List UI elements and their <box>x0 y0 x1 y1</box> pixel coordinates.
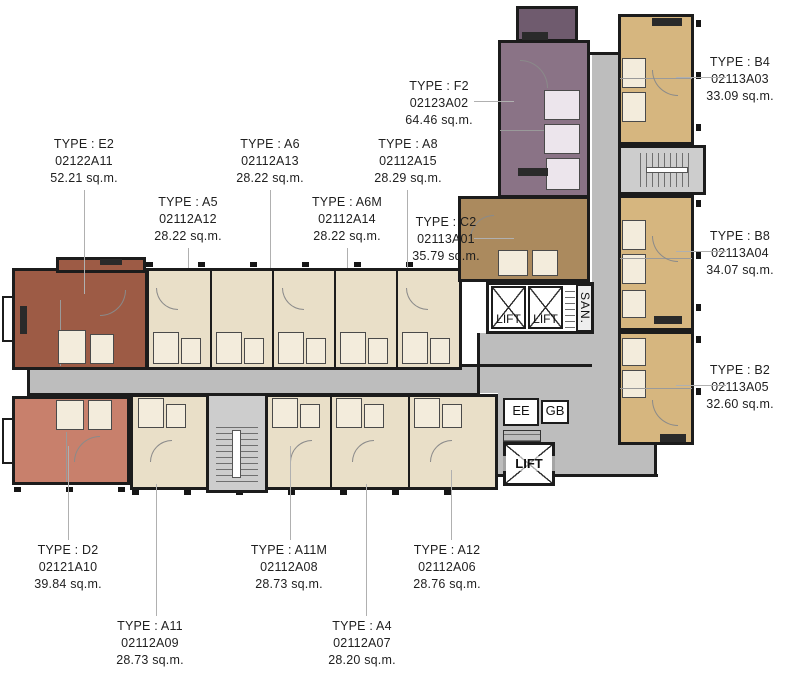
unit-type: TYPE : A8 <box>358 136 458 153</box>
bathroom-pod <box>181 338 201 364</box>
unit-area: 28.73 sq.m. <box>100 652 200 669</box>
bathroom-pod <box>544 90 580 120</box>
bathroom-pod <box>153 332 179 364</box>
unit-type: TYPE : A12 <box>397 542 497 559</box>
label-b4: TYPE : B4 02113A03 33.09 sq.m. <box>688 54 792 105</box>
bathroom-pod <box>306 338 326 364</box>
wall <box>589 52 621 55</box>
label-a11: TYPE : A11 02112A09 28.73 sq.m. <box>100 618 200 669</box>
bathroom-pod <box>622 370 646 398</box>
bathroom-pod <box>544 124 580 154</box>
label-a5: TYPE : A5 02112A12 28.22 sq.m. <box>138 194 238 245</box>
bathroom-pod <box>368 338 388 364</box>
unit-area: 39.84 sq.m. <box>18 576 118 593</box>
unit-type: TYPE : E2 <box>34 136 134 153</box>
unit-area: 35.79 sq.m. <box>398 248 494 265</box>
label-chip <box>660 434 686 442</box>
bathroom-pod <box>364 404 384 428</box>
unit-area: 28.22 sq.m. <box>297 228 397 245</box>
unit-code: 02123A02 <box>398 95 480 112</box>
unit-code: 02112A08 <box>237 559 341 576</box>
label-chip <box>654 316 682 324</box>
unit-code: 02122A11 <box>34 153 134 170</box>
balcony <box>2 296 14 342</box>
bathroom-pod <box>414 398 440 428</box>
unit-type: TYPE : B4 <box>688 54 792 71</box>
label-chip <box>20 306 27 334</box>
unit-type: TYPE : D2 <box>18 542 118 559</box>
ee-label: EE <box>503 403 539 418</box>
unit-area: 28.22 sq.m. <box>220 170 320 187</box>
lift-label: LIFT <box>491 312 526 326</box>
wall <box>477 333 480 395</box>
label-b2: TYPE : B2 02113A05 32.60 sq.m. <box>688 362 792 413</box>
label-a6m: TYPE : A6M 02112A14 28.22 sq.m. <box>297 194 397 245</box>
bathroom-pod <box>90 334 114 364</box>
gb-label: GB <box>541 403 569 418</box>
stair-landing <box>232 430 241 478</box>
label-a4: TYPE : A4 02112A07 28.20 sq.m. <box>312 618 412 669</box>
bathroom-pod <box>300 404 320 428</box>
leader-line <box>68 446 69 540</box>
unit-code: 02112A07 <box>312 635 412 652</box>
leader-line <box>156 484 157 616</box>
unit-code: 02112A09 <box>100 635 200 652</box>
unit-area: 28.73 sq.m. <box>237 576 341 593</box>
bathroom-pod <box>138 398 164 428</box>
service-hatch <box>565 288 575 328</box>
bathroom-pod <box>336 398 362 428</box>
unit-area: 32.60 sq.m. <box>688 396 792 413</box>
leader-line <box>84 190 85 294</box>
san-room: SAN. <box>576 284 593 332</box>
bathroom-pod <box>340 332 366 364</box>
unit-area: 28.76 sq.m. <box>397 576 497 593</box>
unit-code: 02113A05 <box>688 379 792 396</box>
leader-line <box>366 484 367 616</box>
unit-divider-wall <box>272 270 274 368</box>
lift-label: LIFT <box>528 312 563 326</box>
unit-area: 28.20 sq.m. <box>312 652 412 669</box>
bathroom-pod <box>622 290 646 318</box>
room-divider <box>620 388 692 389</box>
bathroom-pod <box>498 250 528 276</box>
bathroom-pod <box>278 332 304 364</box>
unit-code: 02112A12 <box>138 211 238 228</box>
unit-code: 02112A06 <box>397 559 497 576</box>
unit-divider-wall <box>408 396 410 488</box>
room-divider <box>620 258 692 259</box>
label-chip <box>652 18 682 26</box>
leader-line <box>676 77 726 78</box>
lift-label: LIFT <box>503 456 555 471</box>
label-b8: TYPE : B8 02113A04 34.07 sq.m. <box>688 228 792 279</box>
leader-line <box>188 248 189 268</box>
bathroom-pod <box>216 332 242 364</box>
balcony-ticks <box>132 490 476 495</box>
unit-type: TYPE : A11M <box>237 542 341 559</box>
unit-code: 02113A01 <box>398 231 494 248</box>
bathroom-pod <box>532 250 558 276</box>
unit-area: 64.46 sq.m. <box>398 112 480 129</box>
label-a8: TYPE : A8 02112A15 28.29 sq.m. <box>358 136 458 187</box>
unit-area: 28.22 sq.m. <box>138 228 238 245</box>
bathroom-pod <box>244 338 264 364</box>
unit-type: TYPE : F2 <box>398 78 480 95</box>
bathroom-pod <box>272 398 298 428</box>
leader-line <box>270 190 271 268</box>
unit-area: 34.07 sq.m. <box>688 262 792 279</box>
stair-landing <box>646 167 688 173</box>
unit-type: TYPE : B2 <box>688 362 792 379</box>
bathroom-pod <box>442 404 462 428</box>
label-chip <box>522 32 548 40</box>
bathroom-pod <box>622 58 646 88</box>
leader-line <box>676 385 726 386</box>
bathroom-pod <box>546 158 580 190</box>
unit-divider-wall <box>396 270 398 368</box>
bathroom-pod <box>430 338 450 364</box>
label-chip <box>518 168 548 176</box>
unit-type: TYPE : C2 <box>398 214 494 231</box>
unit-code: 02112A13 <box>220 153 320 170</box>
unit-divider-wall <box>334 270 336 368</box>
label-a12: TYPE : A12 02112A06 28.76 sq.m. <box>397 542 497 593</box>
bathroom-pod <box>166 404 186 428</box>
bathroom-pod <box>622 338 646 366</box>
unit-type: TYPE : A6 <box>220 136 320 153</box>
unit-type: TYPE : A4 <box>312 618 412 635</box>
label-a11m: TYPE : A11M 02112A08 28.73 sq.m. <box>237 542 341 593</box>
leader-line <box>451 470 452 540</box>
label-e2: TYPE : E2 02122A11 52.21 sq.m. <box>34 136 134 187</box>
unit-area: 52.21 sq.m. <box>34 170 134 187</box>
leader-line <box>474 101 514 102</box>
san-label: SAN. <box>578 292 592 324</box>
bathroom-pod <box>56 400 84 430</box>
label-c2: TYPE : C2 02113A01 35.79 sq.m. <box>398 214 494 265</box>
floor-plan: LIFT LIFT SAN. EE GB <box>0 0 794 680</box>
room-divider <box>500 130 544 131</box>
label-a6: TYPE : A6 02112A13 28.22 sq.m. <box>220 136 320 187</box>
label-d2: TYPE : D2 02121A10 39.84 sq.m. <box>18 542 118 593</box>
unit-type: TYPE : A6M <box>297 194 397 211</box>
label-chip <box>100 259 122 265</box>
unit-divider-wall <box>330 396 332 488</box>
leader-line <box>290 446 291 540</box>
leader-line <box>347 248 348 268</box>
unit-type: TYPE : A5 <box>138 194 238 211</box>
unit-type: TYPE : A11 <box>100 618 200 635</box>
bathroom-pod <box>622 220 646 250</box>
service-hatch <box>503 430 541 442</box>
bathroom-pod <box>622 92 646 122</box>
bathroom-pod <box>58 330 86 364</box>
room-divider <box>66 432 67 482</box>
unit-code: 02113A03 <box>688 71 792 88</box>
unit-area: 33.09 sq.m. <box>688 88 792 105</box>
bathroom-pod <box>88 400 112 430</box>
bathroom-pod <box>402 332 428 364</box>
leader-line <box>676 251 726 252</box>
unit-divider-wall <box>210 270 212 368</box>
unit-area: 28.29 sq.m. <box>358 170 458 187</box>
corridor-vertical <box>592 55 618 477</box>
leader-line <box>474 238 514 239</box>
balcony <box>2 418 14 464</box>
unit-type: TYPE : B8 <box>688 228 792 245</box>
unit-code: 02121A10 <box>18 559 118 576</box>
balcony-ticks <box>14 487 126 492</box>
unit-code: 02112A14 <box>297 211 397 228</box>
unit-code: 02112A15 <box>358 153 458 170</box>
label-f2: TYPE : F2 02123A02 64.46 sq.m. <box>398 78 480 129</box>
unit-code: 02113A04 <box>688 245 792 262</box>
